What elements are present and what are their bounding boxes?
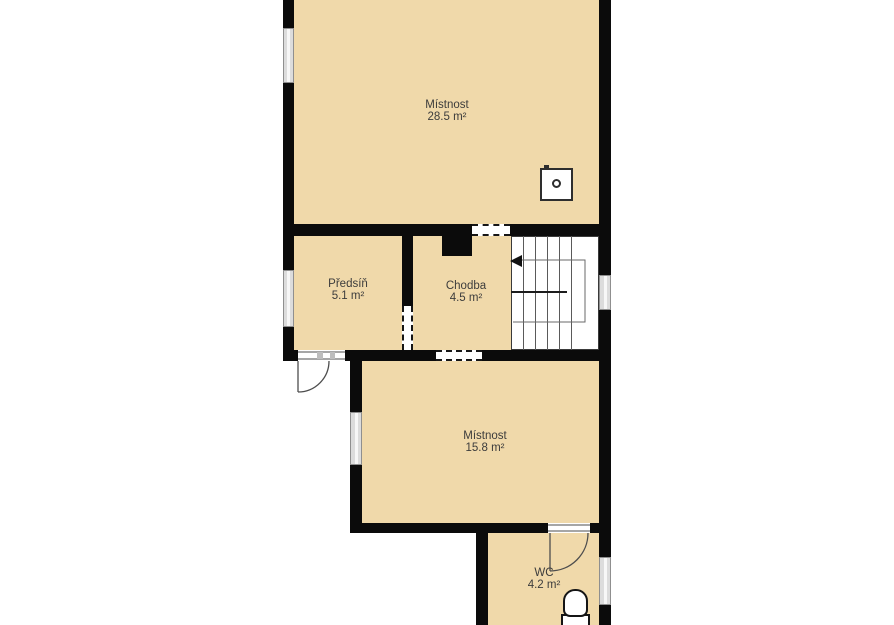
wall — [510, 224, 599, 236]
window-icon — [283, 28, 294, 83]
room-area: 15.8 m² — [463, 442, 506, 454]
room-area: 4.2 m² — [528, 579, 561, 591]
stove-icon — [540, 168, 573, 201]
room-name: Chodba — [446, 280, 486, 292]
wall — [599, 310, 611, 557]
stove-tick — [544, 165, 549, 168]
room-label-mistnost-28-5: Místnost 28.5 m² — [425, 99, 468, 123]
stove-burner-icon — [552, 179, 561, 188]
open-passage — [472, 224, 510, 236]
wall — [402, 236, 413, 306]
door-jamb — [330, 352, 335, 359]
open-passage — [402, 306, 413, 350]
window-icon — [350, 412, 362, 465]
toilet-icon — [563, 589, 588, 617]
wall — [283, 224, 472, 236]
stair-tread — [571, 236, 572, 350]
wall — [590, 523, 599, 533]
room-name: Místnost — [425, 99, 468, 111]
room-name: WC — [528, 567, 561, 579]
wall — [283, 350, 298, 361]
open-passage — [436, 350, 482, 361]
wall — [599, 0, 611, 275]
floor-plan: Místnost 28.5 m² Předsíň 5.1 m² Chodba 4… — [0, 0, 894, 625]
wall — [283, 83, 294, 270]
room-label-mistnost-15-8: Místnost 15.8 m² — [463, 430, 506, 454]
room-label-predsin: Předsíň 5.1 m² — [328, 278, 368, 302]
chimney-stub — [442, 236, 472, 256]
wall — [482, 350, 599, 361]
stair-tread — [547, 236, 548, 350]
wall — [283, 0, 294, 28]
wc-door-threshold — [548, 524, 590, 532]
door-jamb — [317, 352, 323, 359]
room-label-chodba: Chodba 4.5 m² — [446, 280, 486, 304]
wall — [350, 523, 548, 533]
room-area: 4.5 m² — [446, 292, 486, 304]
window-icon — [283, 270, 294, 327]
stair-tread — [559, 236, 560, 350]
wall — [350, 350, 362, 412]
room-name: Předsíň — [328, 278, 368, 290]
room-label-wc: WC 4.2 m² — [528, 567, 561, 591]
stair-tread — [535, 236, 536, 350]
entrance-door-swing-arc — [298, 361, 329, 392]
wall — [599, 605, 611, 625]
room-area: 5.1 m² — [328, 290, 368, 302]
room-area: 28.5 m² — [425, 111, 468, 123]
window-icon — [599, 557, 611, 605]
wall — [476, 533, 488, 625]
window-icon — [599, 275, 611, 310]
staircase — [511, 236, 599, 350]
room-name: Místnost — [463, 430, 506, 442]
stair-tread — [523, 236, 524, 350]
